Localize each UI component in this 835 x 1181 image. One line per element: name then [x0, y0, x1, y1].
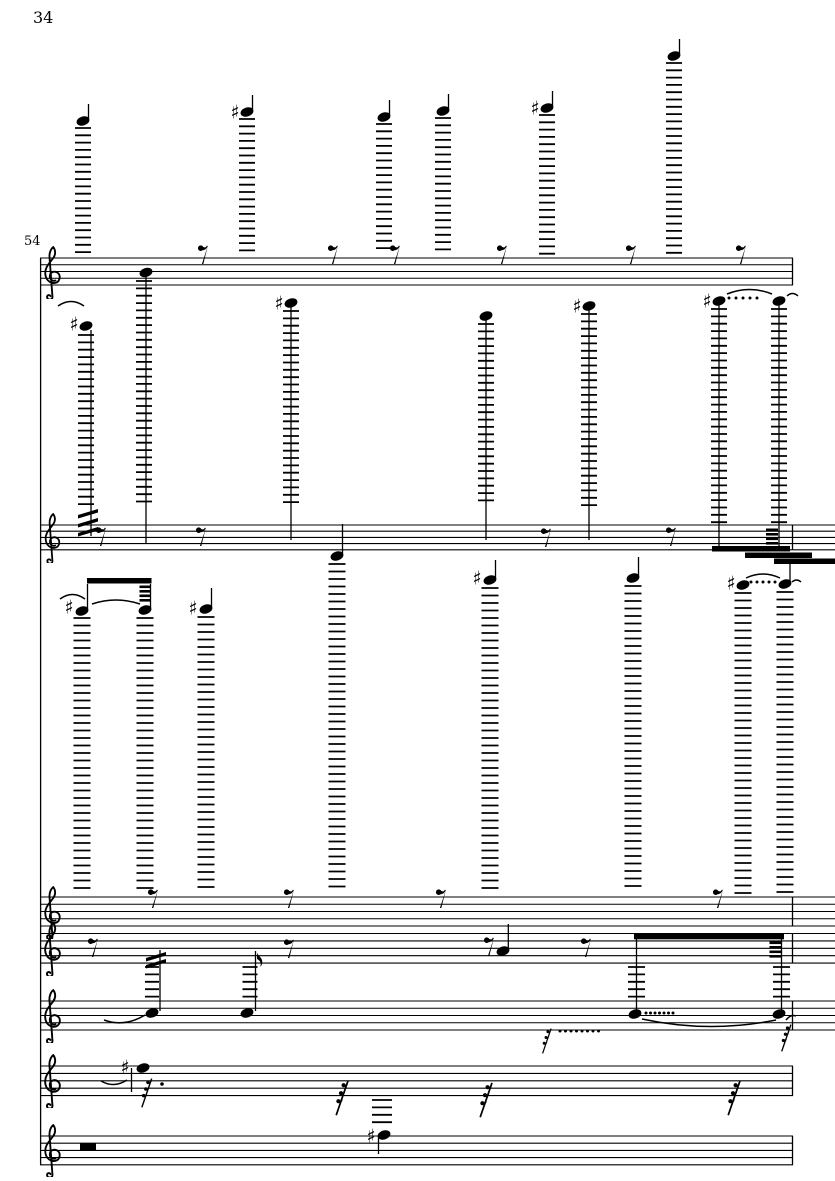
eighth-rest-icon — [497, 245, 507, 264]
beamlet — [766, 533, 778, 536]
beam — [87, 578, 152, 584]
grace-rest-icon — [543, 1029, 552, 1054]
tie-slur — [792, 580, 801, 582]
note-head — [711, 295, 726, 308]
ledger-ladder — [198, 617, 215, 887]
dotted-line-dot — [667, 1012, 670, 1015]
note-head — [627, 1008, 642, 1021]
beam — [634, 934, 784, 940]
grace-rest-icon — [142, 1079, 152, 1108]
tie-slur — [786, 1016, 796, 1021]
beamlet — [140, 599, 152, 602]
dotted-line-dot — [575, 1030, 578, 1033]
treble-clef-icon — [45, 247, 59, 300]
treble-clef-icon — [45, 887, 59, 940]
beamlet — [766, 542, 778, 545]
half-rest — [80, 1144, 96, 1151]
beamlet — [140, 586, 152, 589]
ledger-ladder — [539, 115, 555, 254]
ledger-ladder — [482, 588, 499, 888]
ledger-ladder — [329, 564, 346, 887]
dotted-line-dot — [762, 581, 765, 584]
dotted-line-dot — [749, 297, 752, 300]
dotted-line-dot — [728, 297, 731, 300]
sharp-accidental: ♯ — [69, 314, 78, 336]
score-canvas: ♯♯♯♯♯♯♯♯♯♯♯♯ — [0, 0, 835, 1181]
dotted-line-dot — [663, 1012, 666, 1015]
dotted-line-dot — [735, 297, 738, 300]
ledger-ladder — [372, 1100, 392, 1122]
note-head — [138, 266, 153, 279]
ledger-ladder — [777, 592, 794, 892]
eighth-rest-icon — [713, 889, 723, 908]
dotted-line-dot — [742, 297, 745, 300]
dotted-line-dot — [564, 1030, 567, 1033]
tie-slur — [746, 574, 780, 578]
dotted-line-dot — [768, 581, 771, 584]
beamlet — [770, 942, 782, 945]
beamlet — [140, 590, 152, 593]
dotted-line-dot — [597, 1030, 600, 1033]
dotted-line-dot — [559, 1030, 562, 1033]
dotted-line-dot — [672, 1012, 675, 1015]
sharp-accidental: ♯ — [726, 573, 735, 595]
beamlet — [766, 538, 778, 541]
eighth-rest-icon — [328, 245, 338, 264]
ledger-ladder — [74, 618, 91, 888]
beam — [712, 546, 790, 552]
note-head — [581, 300, 596, 313]
sharp-accidental: ♯ — [120, 1057, 129, 1079]
dotted-line-dot — [654, 1012, 657, 1015]
dotted-line-dot — [592, 1030, 595, 1033]
eighth-rest-icon — [626, 245, 636, 264]
grace-rest-icon — [336, 1081, 348, 1115]
score-page: 34 54 ♯♯♯♯♯♯♯♯♯♯♯♯ — [0, 0, 835, 1181]
ledger-ladder — [75, 128, 91, 252]
sharp-accidental: ♯ — [530, 98, 539, 120]
eighth-flag-icon — [257, 951, 262, 967]
dotted-line-dot — [586, 1030, 589, 1033]
dotted-line-dot — [649, 1012, 652, 1015]
tie-slur — [727, 290, 772, 295]
sharp-accidental: ♯ — [230, 102, 239, 124]
sharp-accidental: ♯ — [366, 1126, 375, 1148]
ledger-ladder — [666, 63, 682, 253]
sharp-accidental: ♯ — [472, 568, 481, 590]
eighth-rest-icon — [148, 889, 158, 908]
eighth-rest-icon — [484, 937, 494, 956]
beamlet — [770, 946, 782, 949]
beam — [774, 559, 835, 565]
dotted-line-dot — [774, 581, 777, 584]
dotted-line-dot — [658, 1012, 661, 1015]
treble-clef-icon — [45, 1055, 60, 1109]
eighth-rest-icon — [88, 938, 98, 957]
grace-rest-icon — [728, 1081, 740, 1115]
dotted-line-dot — [750, 581, 753, 584]
eighth-rest-icon — [436, 889, 446, 908]
sharp-accidental: ♯ — [572, 296, 581, 318]
treble-clef-icon — [45, 1125, 59, 1178]
eighth-rest-icon — [198, 245, 208, 264]
grace-rest-icon — [782, 1025, 791, 1052]
ledger-ladder — [145, 967, 159, 997]
ledger-ladder — [376, 124, 392, 248]
eighth-rest-icon — [736, 245, 746, 264]
beamlet — [770, 955, 782, 958]
dotted-line-dot — [581, 1030, 584, 1033]
tremolo-slash — [78, 518, 98, 528]
tie-slur — [92, 600, 140, 604]
ledger-ladder — [435, 118, 451, 249]
ledger-ladder — [136, 281, 152, 502]
tremolo-slash — [78, 509, 98, 519]
beamlet — [766, 529, 778, 532]
ledger-ladder — [239, 119, 255, 250]
eighth-rest-icon — [284, 889, 294, 908]
beamlet — [140, 595, 152, 598]
ledger-ladder — [137, 618, 154, 888]
tie-slur — [58, 302, 84, 307]
treble-clef-icon — [45, 990, 60, 1044]
note-head — [771, 1008, 786, 1021]
ledger-ladder — [735, 593, 752, 893]
beamlet — [770, 951, 782, 954]
dotted-line-dot — [756, 297, 759, 300]
sharp-accidental: ♯ — [274, 293, 283, 315]
dotted-line-dot — [645, 1012, 648, 1015]
sharp-accidental: ♯ — [188, 598, 197, 620]
sharp-accidental: ♯ — [64, 597, 73, 619]
ledger-ladder — [625, 586, 642, 886]
sharp-accidental: ♯ — [702, 291, 711, 313]
dotted-line-dot — [570, 1030, 573, 1033]
augmentation-dot — [160, 1082, 164, 1086]
tie-slur — [104, 1015, 145, 1023]
dotted-line-dot — [756, 581, 759, 584]
note-head — [135, 1062, 150, 1075]
beam — [745, 553, 812, 559]
note-head — [735, 579, 750, 592]
eighth-rest-icon — [390, 245, 400, 264]
note-head — [283, 297, 298, 310]
note-head — [478, 310, 493, 323]
note-head — [771, 295, 786, 308]
tie-slur — [787, 294, 798, 297]
eighth-rest-icon — [581, 938, 591, 957]
treble-clef-icon — [46, 514, 60, 564]
